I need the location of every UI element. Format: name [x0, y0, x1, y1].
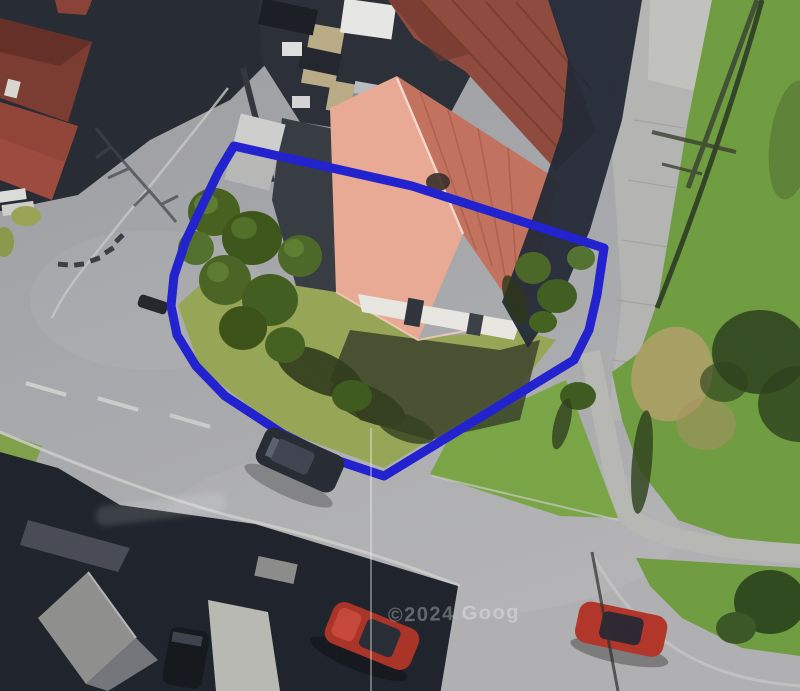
aerial-imagery — [0, 0, 800, 691]
lawn-bush — [332, 380, 372, 412]
satellite-map[interactable]: ©2024 Goog — [0, 0, 800, 691]
bush — [11, 206, 41, 226]
imagery-watermark: ©2024 Goog — [388, 601, 521, 627]
